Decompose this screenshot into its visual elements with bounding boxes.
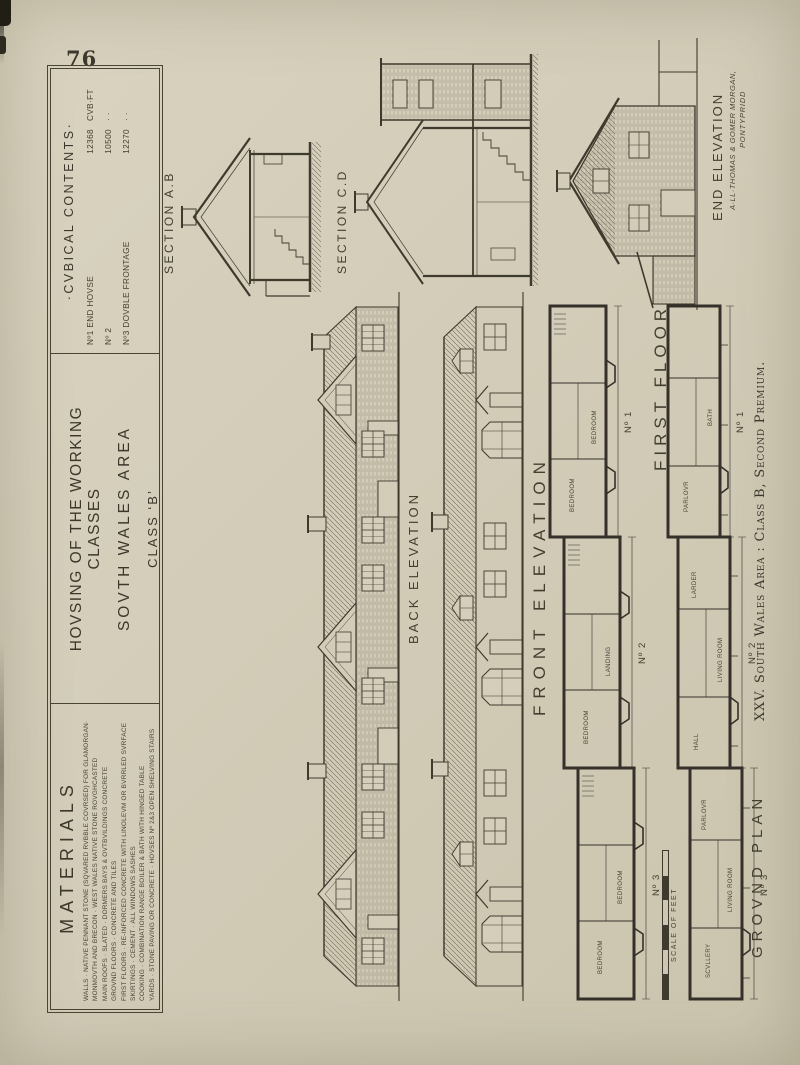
architect-credit-town: PONTYPRIDD bbox=[738, 91, 747, 148]
plate-title-line2: SOVTH WALES AREA bbox=[116, 362, 134, 695]
room-label: LIVING ROOM bbox=[728, 868, 734, 912]
unit-number-label: Nº 3 bbox=[651, 874, 662, 896]
section-cd-lines bbox=[355, 54, 538, 286]
cubical-row-name: Nº 2 bbox=[104, 173, 113, 345]
first-floor-plan-lines bbox=[550, 306, 650, 999]
cubical-row: Nº 2 10500 · · bbox=[104, 77, 113, 345]
room-label: BEDROOM bbox=[570, 478, 576, 512]
cubical-contents-title: ·CVBICAL CONTENTS· bbox=[62, 77, 76, 345]
scan-edge-shadow bbox=[0, 0, 4, 1065]
section-ab-label: SECTION A.B bbox=[162, 171, 176, 274]
plate-title-line1: HOVSING OF THE WORKING CLASSES bbox=[68, 362, 104, 695]
scan-corner-mark bbox=[0, 0, 11, 26]
architect-credit: A·LL·THOMAS & GOMER MORGAN, bbox=[728, 71, 737, 210]
scanned-book-page: 76 MATERIALS WALLS · NATIVE PENNANT STON… bbox=[0, 0, 800, 1065]
back-elevation-drawing bbox=[304, 289, 404, 1004]
first-floor-plan-drawing: BEDROOM BEDROOM BEDROOM LANDING BEDROOM … bbox=[546, 293, 664, 1008]
materials-line: COOKING · COMBINATION RANGE BOILER & BAT… bbox=[138, 712, 147, 1001]
plate-title-line3: CLASS ‘B’ bbox=[145, 362, 160, 695]
cubical-row-value: 12368 bbox=[86, 129, 95, 173]
plate-caption: XXV. South Wales Area : Class B, Second … bbox=[753, 346, 768, 736]
unit-number-label: Nº 1 bbox=[735, 411, 746, 433]
materials-line: YARDS · STONE PAVING OR CONCRETE · HOVSE… bbox=[148, 712, 157, 1001]
room-label: LIVING ROOM bbox=[718, 638, 724, 682]
section-cd-drawing bbox=[353, 40, 538, 300]
architectural-plate: MATERIALS WALLS · NATIVE PENNANT STONE (… bbox=[22, 16, 777, 1016]
room-label: PARLOVR bbox=[684, 481, 690, 512]
cubical-row-value: 12270 bbox=[122, 129, 131, 173]
materials-line: WALLS · NATIVE PENNANT STONE (SQVARED RV… bbox=[82, 712, 91, 1001]
front-elevation-lines bbox=[432, 292, 523, 1001]
unit-number-label: Nº 2 bbox=[637, 642, 648, 664]
plate-title-box: HOVSING OF THE WORKING CLASSES SOVTH WAL… bbox=[51, 354, 159, 704]
materials-box: MATERIALS WALLS · NATIVE PENNANT STONE (… bbox=[51, 704, 159, 1009]
room-label: LANDING bbox=[606, 647, 612, 676]
room-label: PARLOVR bbox=[702, 799, 708, 830]
room-label: BEDROOM bbox=[618, 870, 624, 904]
cubical-row-name: Nº3 DOVBLE FRONTAGE bbox=[122, 173, 131, 345]
room-label: BEDROOM bbox=[592, 410, 598, 444]
cubical-row-unit: · · bbox=[104, 77, 113, 129]
materials-line: FIRST FLOORS · RE-INFORCED CONCRETE WITH… bbox=[120, 712, 129, 1001]
room-label: LARDER bbox=[692, 571, 698, 598]
ground-plan-label: GROVND PLAN bbox=[749, 794, 766, 958]
materials-title: MATERIALS bbox=[57, 712, 78, 1001]
room-label: BEDROOM bbox=[598, 940, 604, 974]
cubical-row-unit: · · bbox=[122, 77, 131, 129]
materials-line: SKIRTINGS · CEMENT · ALL WINDOWS SASHES bbox=[129, 712, 138, 1001]
front-elevation-drawing bbox=[426, 289, 528, 1004]
end-elevation-label: END ELEVATION bbox=[710, 93, 725, 221]
materials-line: GROVND FLOORS · CONCRETE AND TILES bbox=[110, 712, 119, 1001]
cubical-row-name: Nº1 END HOVSE bbox=[86, 173, 95, 345]
materials-line: MONMOVTH AND BRECON · WEST WALES NATIVE … bbox=[91, 712, 100, 1001]
cubical-row: Nº1 END HOVSE 12368 CVB·FT bbox=[86, 77, 95, 345]
cubical-row-value: 10500 bbox=[104, 129, 113, 173]
back-elevation-label: BACK ELEVATION bbox=[406, 492, 421, 644]
section-ab-lines bbox=[182, 138, 321, 296]
scan-corner-mark-2 bbox=[0, 36, 6, 54]
end-elevation-lines bbox=[557, 38, 697, 310]
cubical-contents-box: ·CVBICAL CONTENTS· Nº1 END HOVSE 12368 C… bbox=[51, 69, 159, 354]
cubical-row: Nº3 DOVBLE FRONTAGE 12270 · · bbox=[122, 77, 131, 345]
cubical-row-unit: CVB·FT bbox=[86, 77, 95, 129]
room-label: BATH bbox=[708, 409, 714, 426]
materials-line: MAIN ROOFS · SLATED · DORMERS BAYS & OVT… bbox=[101, 712, 110, 1001]
room-label: BEDROOM bbox=[584, 710, 590, 744]
unit-number-label: Nº 1 bbox=[623, 411, 634, 433]
room-label: SCVLLERY bbox=[706, 944, 712, 978]
end-elevation-drawing bbox=[557, 31, 707, 316]
section-cd-label: SECTION C.D bbox=[335, 169, 349, 274]
room-label: HALL bbox=[694, 733, 700, 750]
title-strip: MATERIALS WALLS · NATIVE PENNANT STONE (… bbox=[50, 68, 160, 1010]
